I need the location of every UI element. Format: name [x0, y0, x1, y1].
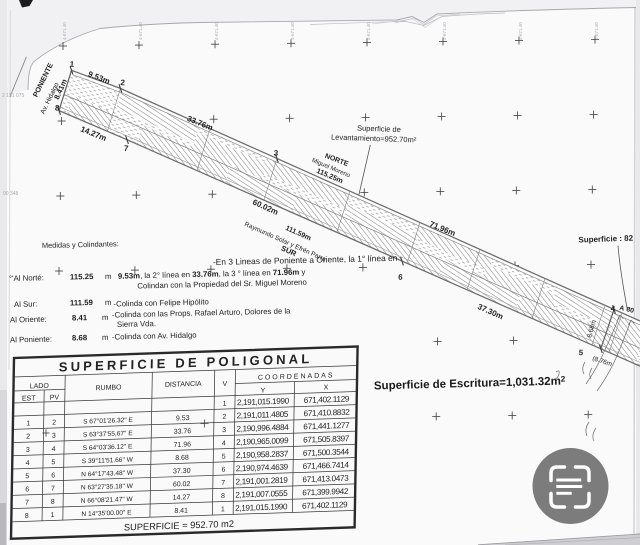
svg-text:4: 4	[52, 446, 56, 453]
svg-text:S 63°37'55,67" E: S 63°37'55,67" E	[83, 429, 133, 439]
svg-text:7: 7	[221, 480, 225, 487]
svg-text:2,190,958.2837: 2,190,958.2837	[236, 449, 289, 460]
svg-text:4-671.40: 4-671.40	[594, 22, 599, 40]
svg-text:671,410.8832: 671,410.8832	[303, 408, 350, 419]
svg-text:671,413.0473: 671,413.0473	[302, 474, 349, 485]
svg-text:2: 2	[26, 434, 30, 441]
svg-text:LADO: LADO	[30, 383, 50, 391]
svg-text:Al Poniente:: Al Poniente:	[10, 335, 52, 345]
svg-text:Superficie de: Superficie de	[357, 124, 401, 135]
svg-text:8.41: 8.41	[174, 508, 188, 515]
svg-text:8.68: 8.68	[72, 333, 88, 342]
svg-text:m: m	[105, 272, 112, 281]
svg-text:4-671.40: 4-671.40	[518, 22, 523, 40]
svg-text:111.59: 111.59	[70, 298, 94, 308]
svg-text:7: 7	[51, 486, 55, 493]
svg-text:2 191 075: 2 191 075	[2, 93, 24, 99]
svg-text:8: 8	[221, 493, 225, 500]
svg-text:°'Al Norté:: °'Al Norté:	[9, 273, 44, 283]
svg-text:671,402.1129: 671,402.1129	[304, 394, 350, 405]
svg-text:5: 5	[222, 453, 226, 460]
svg-text:S 64°03'36.12" E: S 64°03'36.12" E	[83, 442, 133, 452]
svg-text:4-671.40: 4-671.40	[290, 22, 295, 40]
svg-text:2: 2	[52, 419, 56, 426]
svg-text:37.30: 37.30	[173, 468, 191, 476]
svg-text:DISTANCIA: DISTANCIA	[165, 381, 202, 389]
svg-text:EST: EST	[22, 395, 36, 402]
svg-text:4-671.40: 4-671.40	[138, 22, 143, 40]
svg-text:115.25: 115.25	[70, 272, 94, 282]
svg-text:3: 3	[26, 447, 30, 454]
svg-text:8.68: 8.68	[175, 455, 189, 462]
svg-text:671,441.1277: 671,441.1277	[303, 421, 350, 432]
svg-text:4-671.40: 4-671.40	[214, 22, 219, 40]
svg-text:PV: PV	[50, 394, 60, 401]
svg-text:8.41: 8.41	[72, 313, 88, 322]
svg-text:5: 5	[51, 459, 55, 466]
svg-text:6: 6	[51, 472, 55, 479]
svg-text:671,466.7414: 671,466.7414	[303, 460, 350, 471]
svg-text:6: 6	[221, 467, 225, 474]
svg-text:2,191,015.1990: 2,191,015.1990	[237, 396, 290, 407]
svg-text:Y: Y	[261, 388, 266, 395]
svg-text:4-671.40: 4-671.40	[62, 22, 67, 40]
svg-text:m: m	[102, 333, 109, 342]
svg-text:1: 1	[51, 512, 55, 519]
svg-text:671,399.9942: 671,399.9942	[302, 487, 349, 498]
svg-text:33.76: 33.76	[174, 428, 192, 436]
svg-text:X: X	[324, 384, 329, 391]
svg-text:2,191,011.4805: 2,191,011.4805	[237, 410, 289, 421]
svg-text:1: 1	[221, 506, 225, 513]
svg-text:V: V	[222, 381, 227, 388]
svg-text:4: 4	[26, 460, 30, 467]
svg-text:4-671.40: 4-671.40	[366, 22, 371, 40]
svg-text:671,505.8397: 671,505.8397	[303, 434, 350, 445]
svg-text:RUMBO: RUMBO	[95, 384, 122, 392]
svg-text:7: 7	[25, 500, 29, 507]
svg-text:5: 5	[25, 473, 29, 480]
svg-text:8: 8	[51, 499, 55, 506]
svg-text:90 348: 90 348	[3, 191, 19, 197]
svg-text:m: m	[105, 298, 112, 307]
svg-text:71.96: 71.96	[173, 441, 191, 449]
svg-text:Medidas y Colindantes:: Medidas y Colindantes:	[42, 239, 119, 250]
svg-text:1: 1	[26, 420, 30, 427]
svg-text:2,190,974.4639: 2,190,974.4639	[236, 463, 289, 474]
svg-text:4-671.40: 4-671.40	[442, 22, 447, 40]
svg-text:1: 1	[223, 401, 227, 408]
svg-text:8: 8	[25, 513, 29, 520]
svg-text:14.27: 14.27	[173, 494, 191, 502]
svg-text:2: 2	[222, 414, 226, 421]
svg-text:Sierra Vda.: Sierra Vda.	[117, 319, 156, 329]
svg-text:S 67°01'26.32" E: S 67°01'26.32" E	[83, 416, 133, 426]
svg-text:Al Sur:: Al Sur:	[14, 299, 38, 309]
svg-text:671,500.3544: 671,500.3544	[303, 447, 350, 458]
svg-text:2,191,007.0555: 2,191,007.0555	[235, 489, 288, 500]
svg-text:6: 6	[25, 486, 29, 493]
svg-text:m: m	[102, 313, 109, 322]
svg-text:2,190,996.4884: 2,190,996.4884	[236, 423, 289, 434]
svg-text:Superficie : 82: Superficie : 82	[578, 234, 634, 245]
svg-text:2,191,015.1990: 2,191,015.1990	[235, 502, 288, 513]
svg-text:671,402.1129: 671,402.1129	[302, 500, 348, 511]
svg-text:2,190,965.0099: 2,190,965.0099	[236, 436, 289, 447]
svg-text:9.53: 9.53	[176, 415, 190, 422]
svg-text:3: 3	[222, 427, 226, 434]
svg-text:3: 3	[52, 433, 56, 440]
svg-text:Al Oriente:: Al Oriente:	[10, 315, 47, 325]
svg-text:4: 4	[222, 440, 226, 447]
svg-text:2,191,001.2819: 2,191,001.2819	[235, 476, 288, 487]
svg-text:60.02: 60.02	[173, 481, 191, 489]
